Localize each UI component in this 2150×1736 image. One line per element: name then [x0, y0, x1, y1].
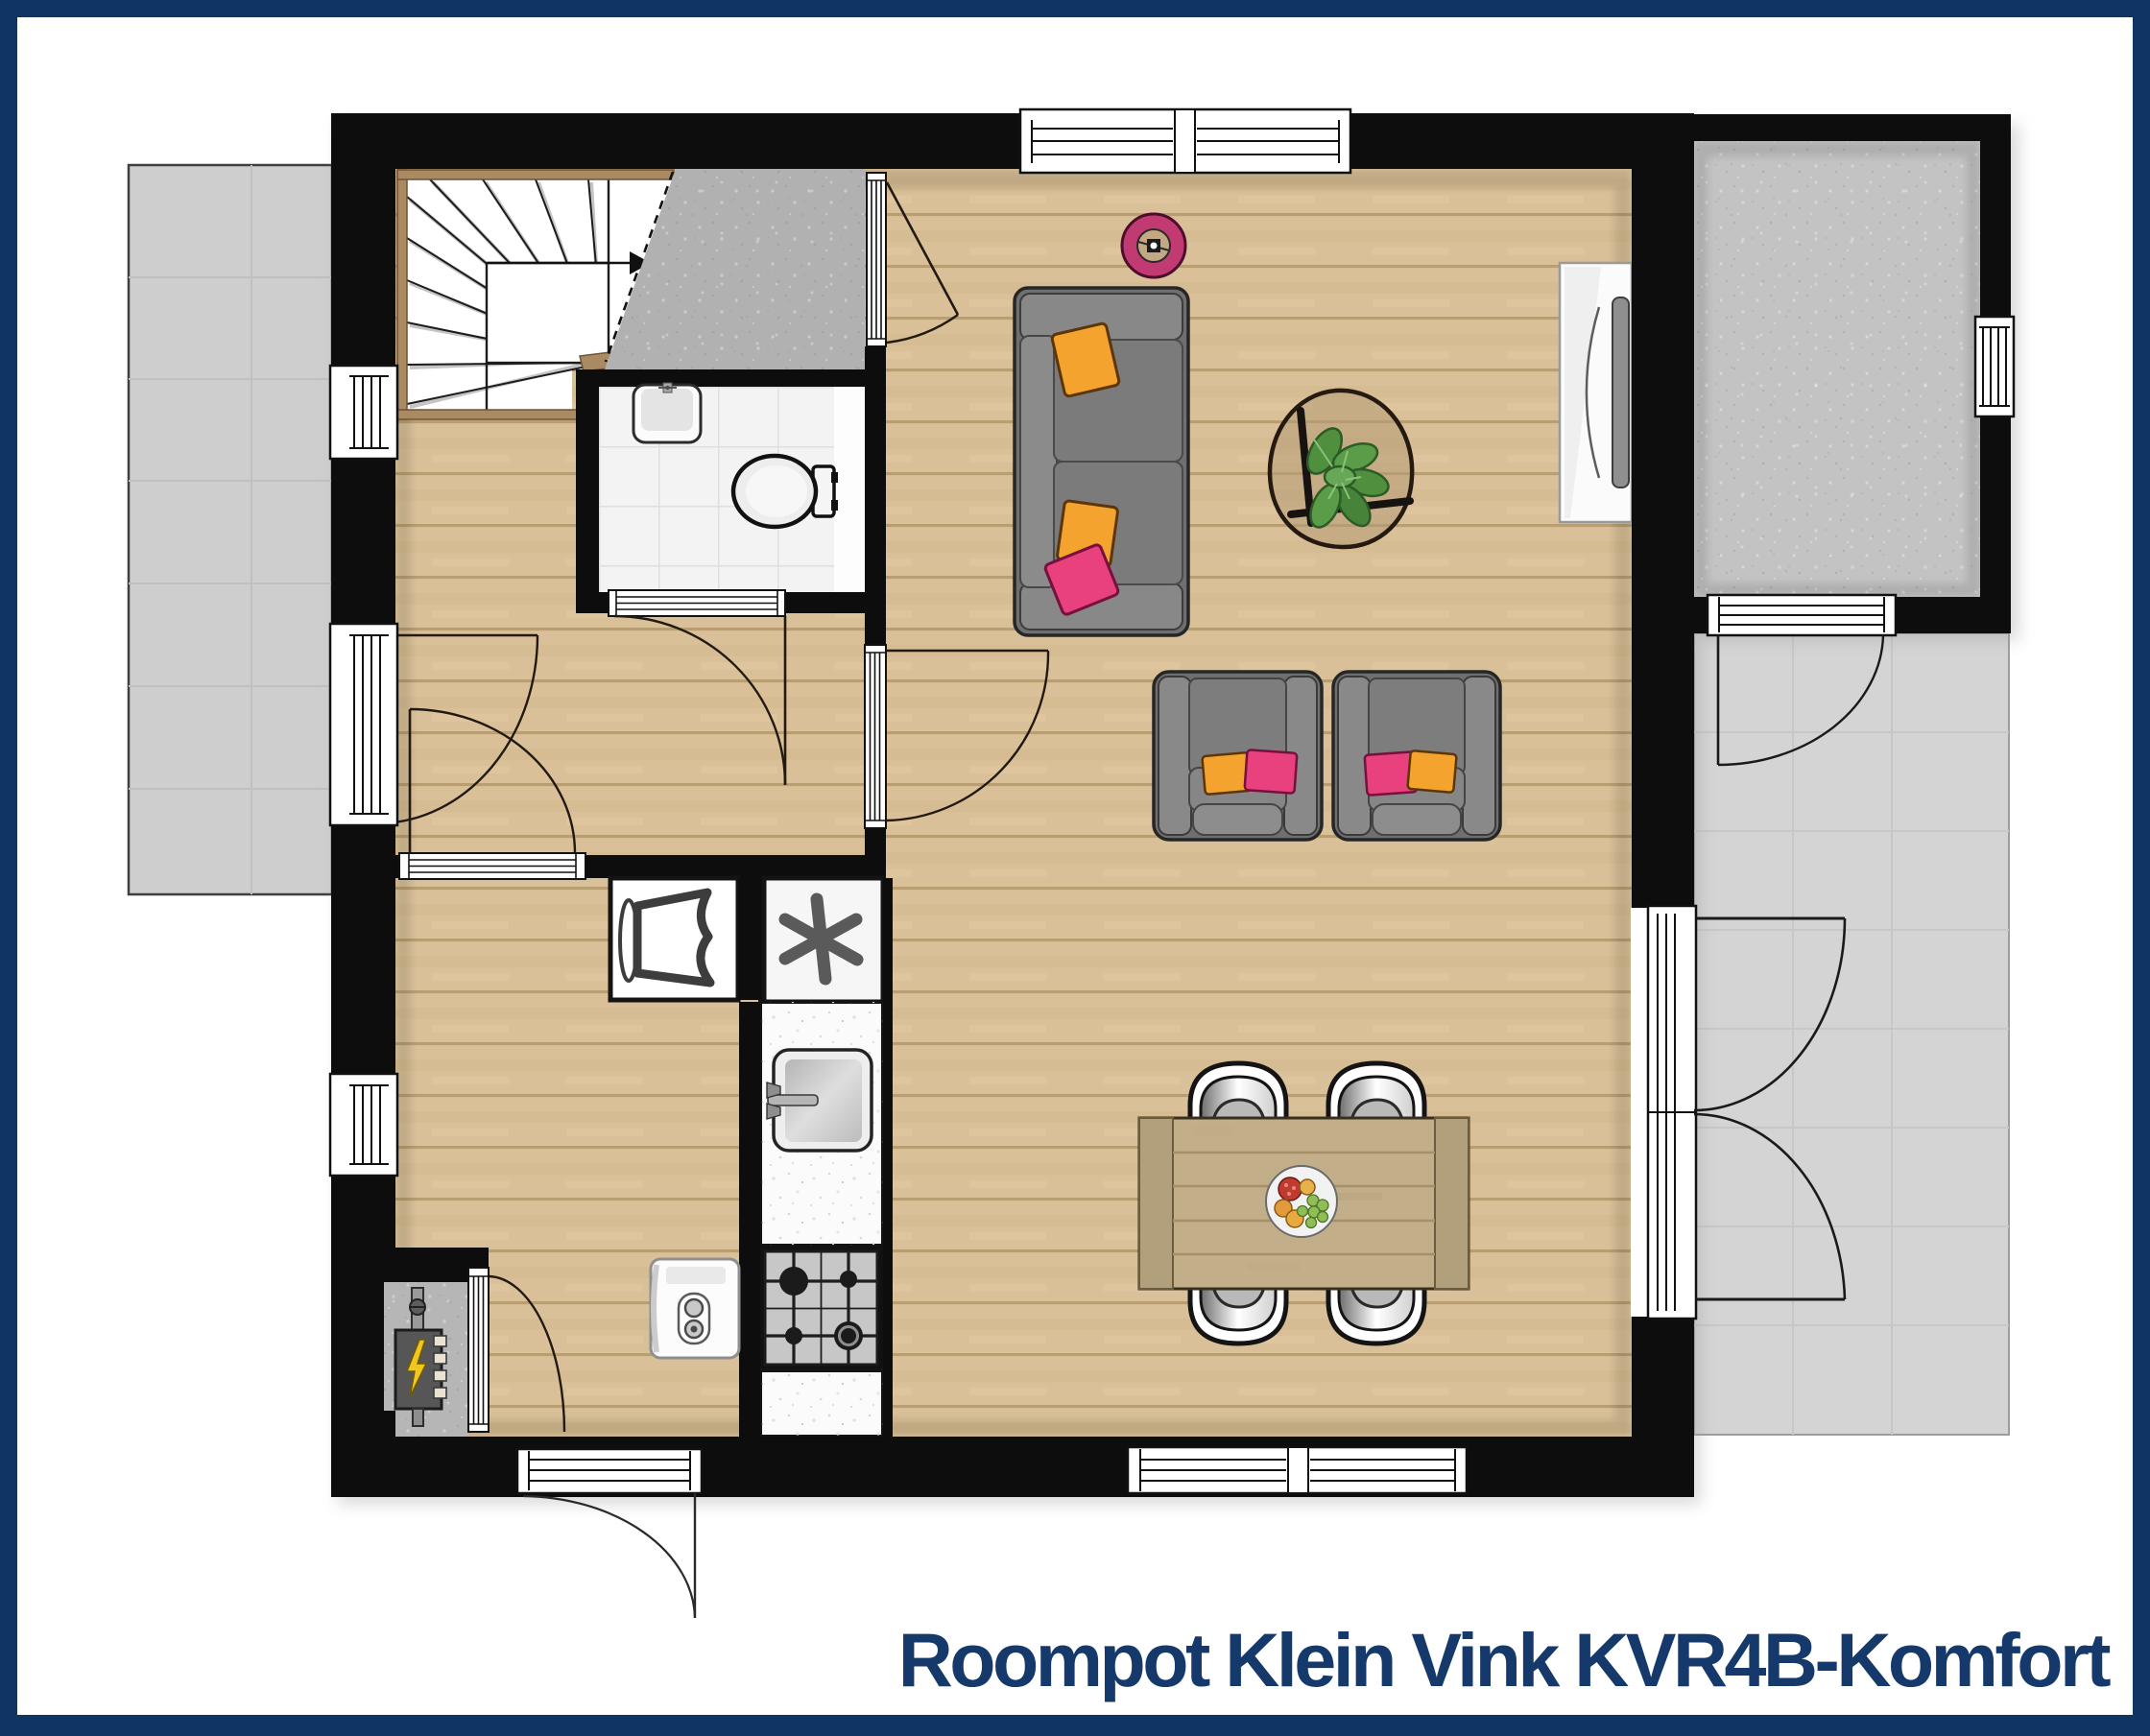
svg-text:Roompot Klein Vink KVR4B-Komfo: Roompot Klein Vink KVR4B-Komfort [898, 1617, 2111, 1702]
